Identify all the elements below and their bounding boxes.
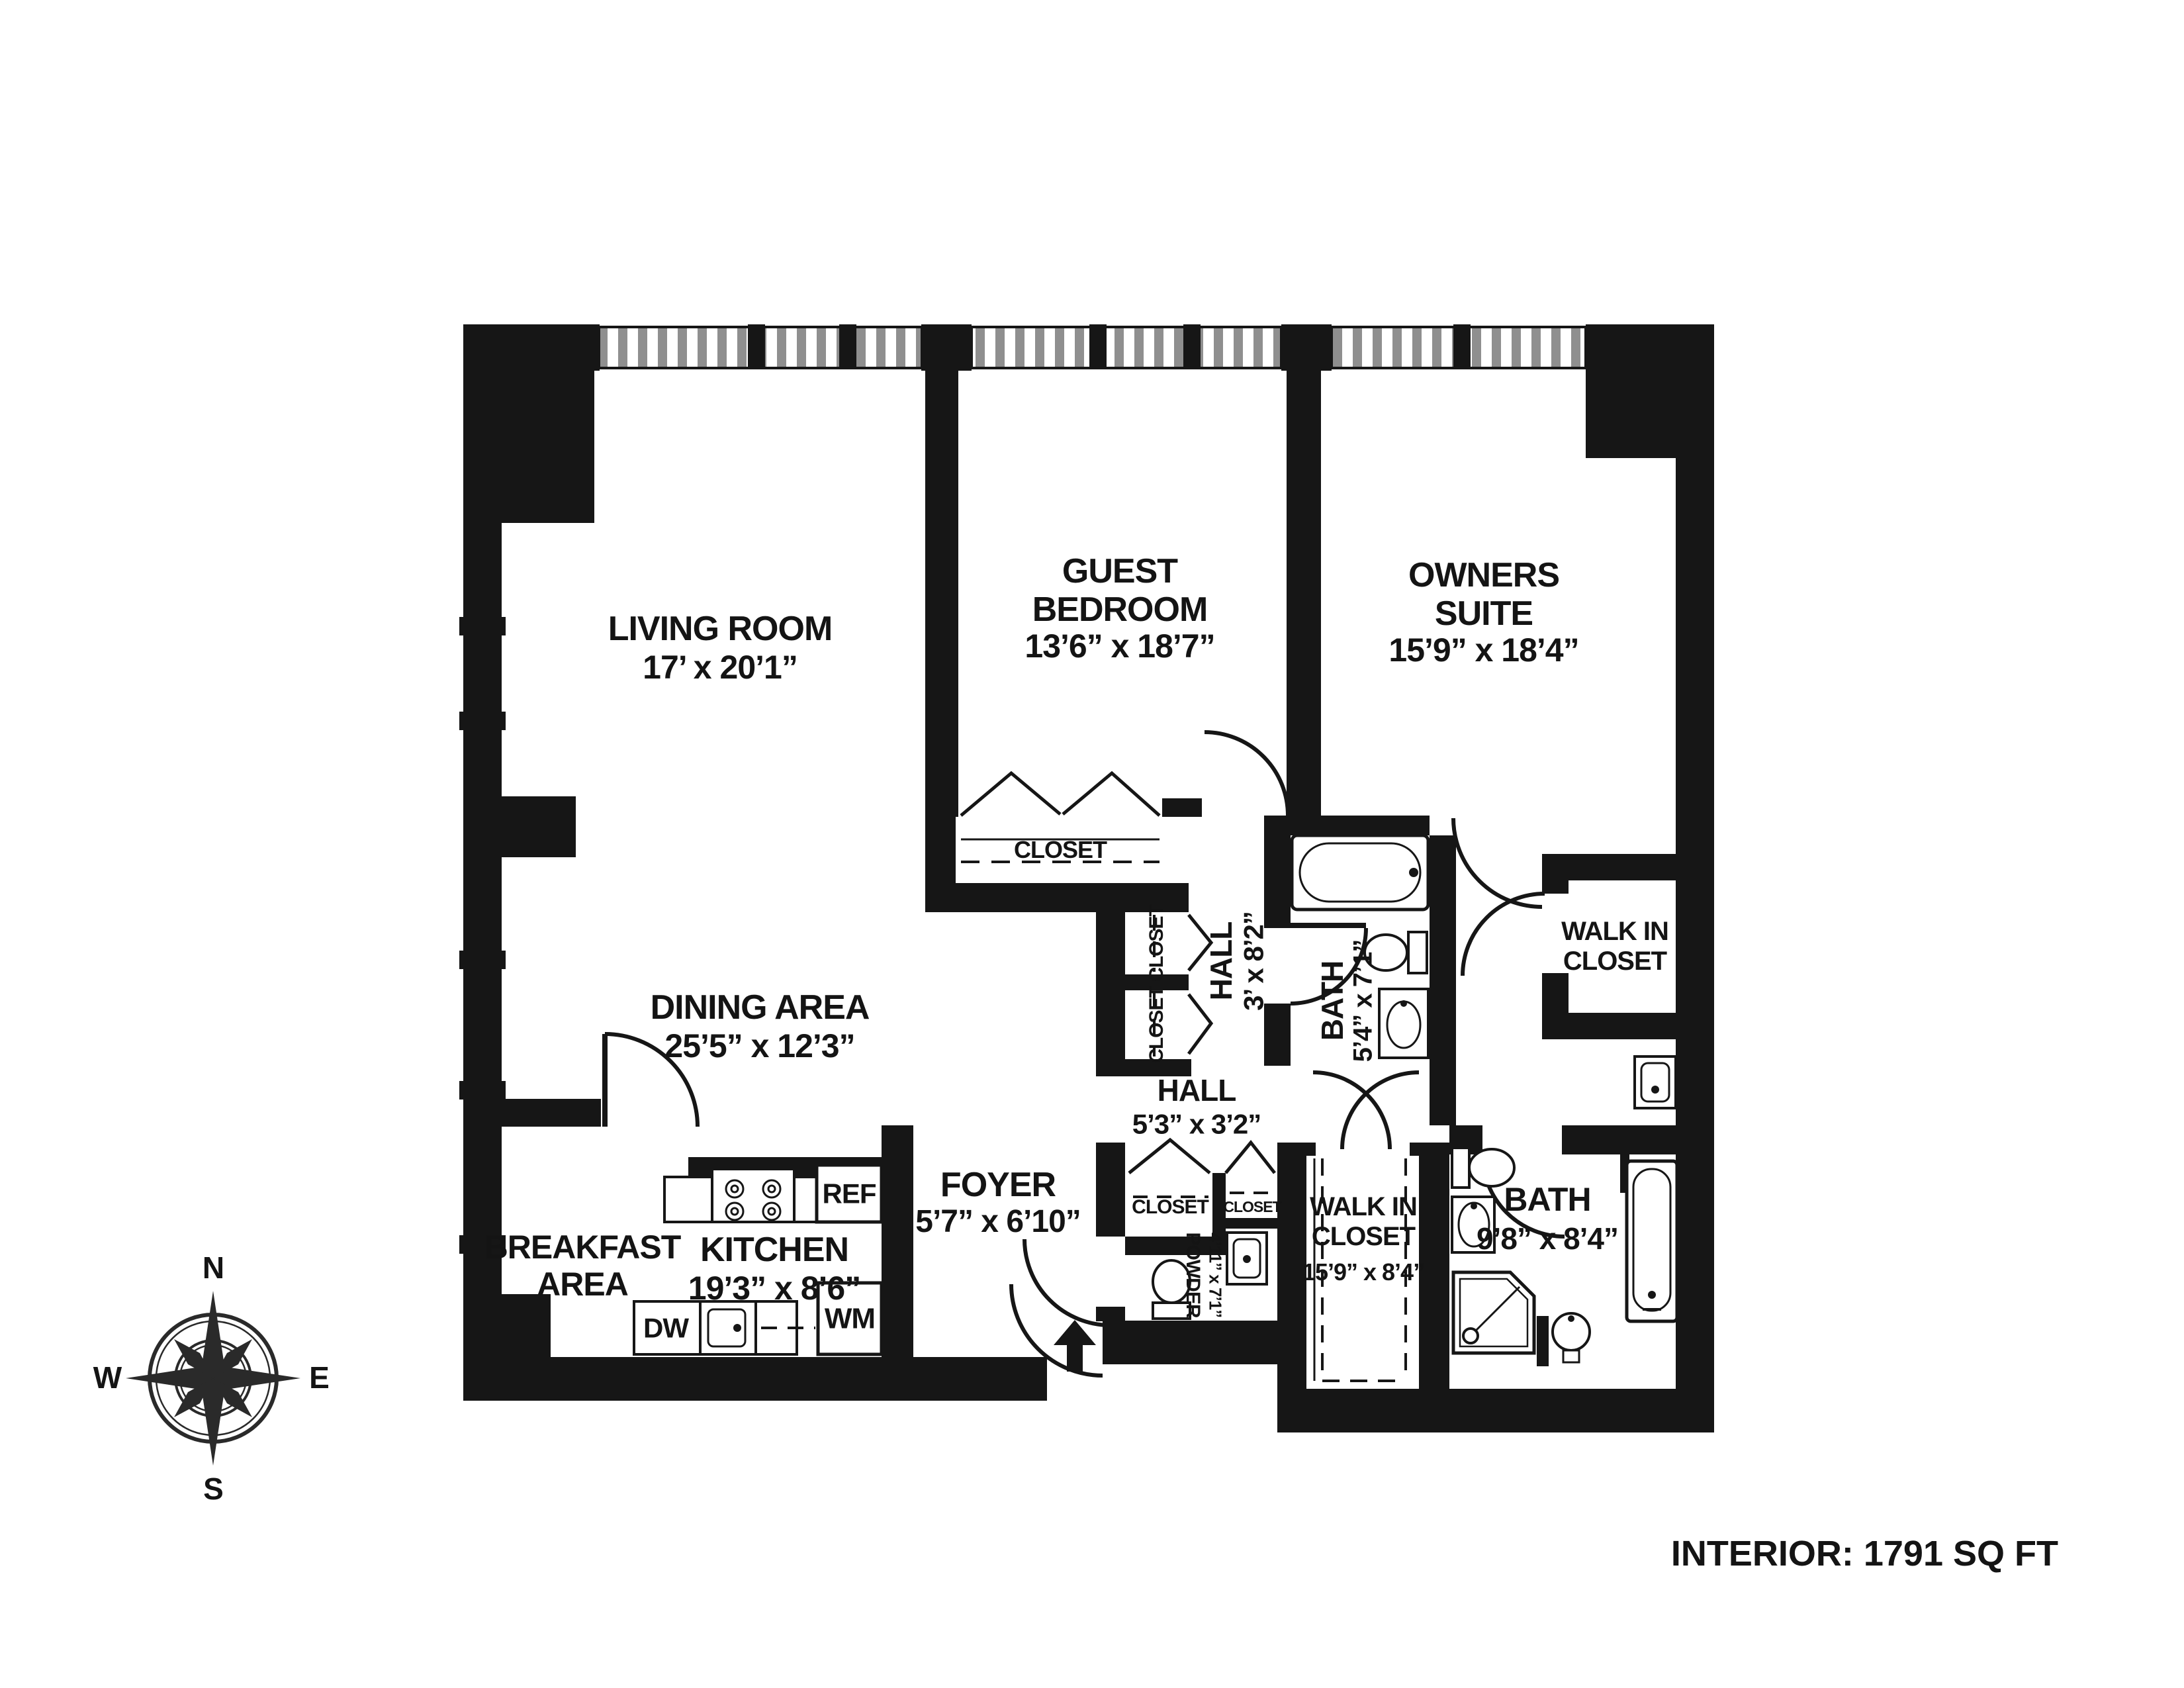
lower-closet-1-label: CLOSET: [1132, 1196, 1208, 1219]
compass-west-label: W: [93, 1361, 121, 1395]
hall-upper-label: HALL: [1205, 922, 1239, 1001]
interior-sqft-text: INTERIOR: 1791 SQ FT: [1621, 1533, 2058, 1574]
kitchen-dims: 19’3” x 8’6”: [688, 1270, 860, 1307]
hall-closet-1-label: CLOSET: [1146, 905, 1168, 982]
owners-suite-dims: 15’9” x 18’4”: [1388, 632, 1578, 669]
walk-in-closet-upper-label: WALK IN CLOSET: [1542, 917, 1688, 976]
foyer-dims: 5’7” x 6’10”: [915, 1204, 1081, 1240]
bath-lower-dims: 9’8” x 8’4”: [1477, 1222, 1618, 1256]
floorplan-page: LIVING ROOM 17’ x 20’1” GUEST BEDROOM 13…: [0, 0, 2184, 1688]
hall-upper-dims: 3’ x 8’2”: [1238, 912, 1269, 1011]
compass-east-label: E: [309, 1361, 329, 1395]
foyer-label: FOYER: [940, 1166, 1056, 1204]
labels-layer: LIVING ROOM 17’ x 20’1” GUEST BEDROOM 13…: [0, 0, 2184, 1688]
bath-lower-label: BATH: [1504, 1181, 1590, 1218]
hall-lower-dims: 5’3” x 3’2”: [1132, 1108, 1261, 1139]
powder-room-dims: 4’11” x 7’1”: [1205, 1233, 1224, 1317]
refrigerator-label: REF: [823, 1178, 876, 1209]
walk-in-closet-lower-dims: 15’9” x 8’4”: [1302, 1259, 1424, 1286]
walk-in-closet-lower-label: WALK IN CLOSET: [1291, 1192, 1436, 1252]
guest-bedroom-dims: 13’6” x 18’7”: [1024, 628, 1214, 665]
hall-lower-label: HALL: [1158, 1074, 1236, 1108]
kitchen-label: KITCHEN: [700, 1231, 848, 1269]
powder-room-label: POWDER: [1181, 1233, 1204, 1318]
living-room-label: LIVING ROOM: [608, 610, 833, 648]
guest-closet-label: CLOSET: [1014, 837, 1107, 863]
washing-machine-label: WM: [825, 1302, 875, 1335]
breakfast-area-label: BREAKFAST AREA: [467, 1229, 698, 1303]
guest-bedroom-label: GUEST BEDROOM: [1011, 552, 1229, 629]
owners-suite-label: OWNERS SUITE: [1391, 556, 1576, 633]
compass-north-label: N: [203, 1251, 224, 1286]
dishwasher-label: DW: [643, 1312, 688, 1343]
living-room-dims: 17’ x 20’1”: [643, 649, 797, 686]
compass-south-label: S: [203, 1472, 223, 1507]
hall-closet-2-label: CLOSET: [1146, 986, 1168, 1063]
dining-area-label: DINING AREA: [651, 988, 870, 1027]
bath-upper-label: BATH: [1316, 961, 1350, 1041]
lower-closet-2-label: CLOSET: [1223, 1199, 1281, 1216]
bath-upper-dims: 5’4” x 7’1”: [1349, 940, 1379, 1062]
dining-area-dims: 25’5” x 12’3”: [664, 1027, 854, 1064]
